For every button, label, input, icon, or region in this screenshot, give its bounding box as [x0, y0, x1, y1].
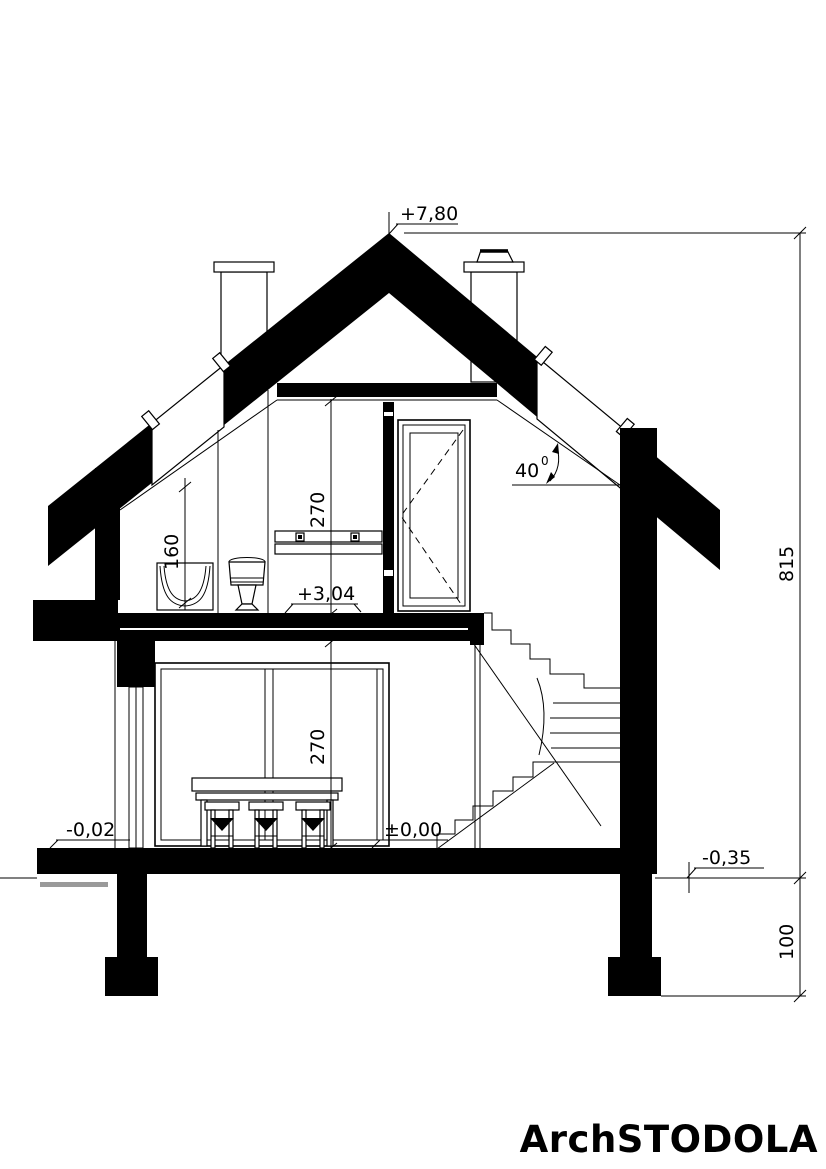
level-marker-terrain: -0,35 — [687, 847, 764, 893]
bar-stool — [296, 802, 330, 848]
toilet — [229, 558, 265, 611]
bar-stool — [205, 802, 239, 848]
bar-stools — [205, 802, 330, 848]
roof-pitch-label: 40 — [515, 460, 539, 482]
wall-right — [620, 428, 657, 874]
entry-level-label: -0,02 — [66, 819, 115, 841]
ground-floor-level-label: ±0,00 — [384, 819, 442, 841]
stair-stringer-lower — [437, 763, 554, 849]
foundation-left — [105, 874, 158, 996]
roof-window-right — [534, 346, 634, 492]
section-drawing: +7,80 815 100 40 0 160 270 270 — [0, 0, 826, 1169]
attic-floor-level-label: +3,04 — [297, 583, 355, 605]
terrain-level-label: -0,35 — [702, 847, 751, 869]
knee-wall-left — [95, 468, 120, 600]
slab-shadow — [40, 882, 108, 887]
level-marker-peak: +7,80 — [389, 203, 806, 246]
level-marker-entry: -0,02 — [50, 819, 130, 848]
lintel-left — [117, 637, 155, 687]
roof-window-left — [142, 353, 231, 485]
dimension-total-height: 815 100 — [776, 227, 806, 1002]
partition-wall — [383, 402, 394, 613]
peak-level-label: +7,80 — [400, 203, 458, 225]
logo: ArchSTODOLA — [520, 1118, 818, 1161]
attic-floor-slab — [33, 600, 484, 645]
ground-height-label: 270 — [307, 729, 329, 765]
knee-height-label: 160 — [161, 534, 183, 570]
attic-door — [398, 420, 470, 611]
bar-stool — [249, 802, 283, 848]
roof-pitch-sup: 0 — [541, 454, 549, 468]
corner-post — [129, 687, 143, 848]
staircase — [437, 613, 620, 849]
collar-beam — [277, 383, 497, 397]
attic-height-label: 270 — [307, 492, 329, 528]
foundation-depth-label: 100 — [776, 924, 798, 960]
drawing-sheet: +7,80 815 100 40 0 160 270 270 — [0, 0, 826, 1169]
foundation-right — [608, 874, 661, 996]
level-marker-attic-floor: +3,04 — [285, 583, 361, 613]
total-height-label: 815 — [776, 546, 798, 582]
wall-shelf — [275, 531, 382, 554]
